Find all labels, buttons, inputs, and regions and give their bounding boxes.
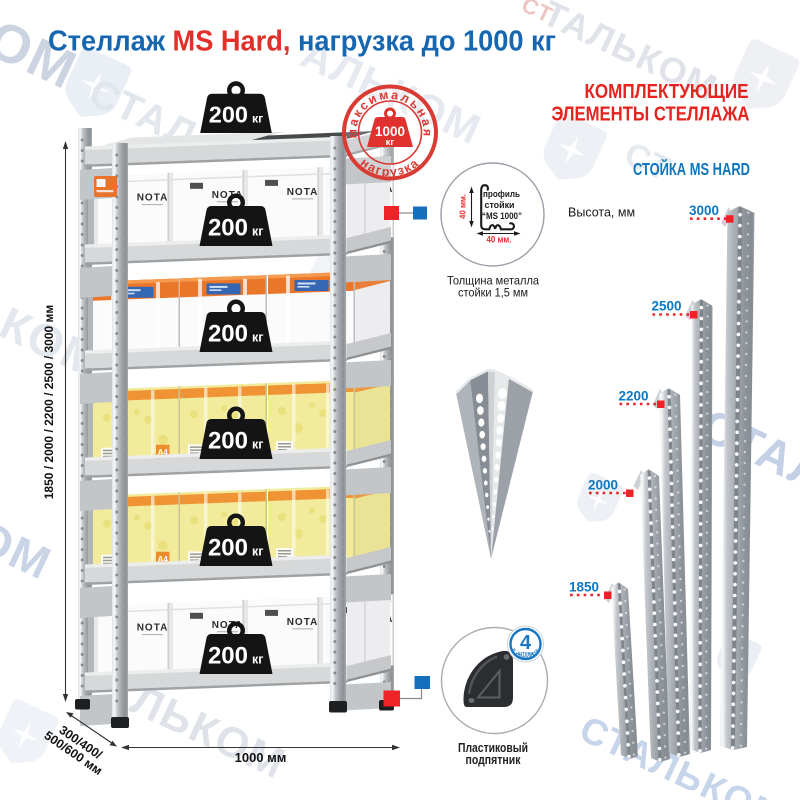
- svg-text:“MS 1000”: “MS 1000”: [482, 211, 522, 222]
- svg-text:стойки: стойки: [485, 200, 515, 211]
- svg-text:подпятник: подпятник: [466, 752, 521, 767]
- svg-text:профиль: профиль: [483, 189, 520, 200]
- svg-text:200: 200: [209, 102, 248, 128]
- svg-text:кг: кг: [252, 653, 263, 667]
- svg-text:40 мм.: 40 мм.: [458, 194, 468, 219]
- svg-text:40 мм.: 40 мм.: [487, 235, 512, 245]
- svg-text:NOTA: NOTA: [137, 193, 169, 204]
- svg-text:200: 200: [208, 321, 248, 348]
- svg-text:кг: кг: [386, 137, 395, 148]
- svg-text:Высота, мм: Высота, мм: [568, 206, 635, 220]
- svg-text:NOTA: NOTA: [287, 187, 319, 198]
- svg-text:200: 200: [208, 643, 248, 670]
- svg-text:1000 мм: 1000 мм: [235, 750, 287, 765]
- svg-text:кг: кг: [252, 225, 263, 239]
- svg-text:ЭЛЕМЕНТЫ СТЕЛЛАЖА: ЭЛЕМЕНТЫ СТЕЛЛАЖА: [552, 103, 750, 126]
- svg-text:1850: 1850: [569, 580, 599, 595]
- svg-text:КОМПЛЕКТУЮЩИЕ: КОМПЛЕКТУЮЩИЕ: [585, 80, 749, 103]
- svg-text:штуки: штуки: [518, 651, 534, 657]
- svg-text:2000: 2000: [588, 478, 618, 493]
- svg-text:NOTA: NOTA: [287, 617, 319, 628]
- svg-text:2200: 2200: [618, 389, 648, 404]
- svg-text:3000: 3000: [689, 203, 719, 218]
- svg-text:200: 200: [208, 428, 248, 455]
- svg-text:кг: кг: [252, 112, 263, 126]
- svg-text:1850 / 2000 / 2200 / 2500 / 30: 1850 / 2000 / 2200 / 2500 / 3000 мм: [42, 305, 56, 500]
- svg-text:СТОЙКА MS HARD: СТОЙКА MS HARD: [633, 158, 750, 179]
- svg-text:кг: кг: [252, 545, 263, 559]
- svg-text:кг: кг: [252, 438, 263, 452]
- svg-text:200: 200: [208, 535, 248, 562]
- svg-text:Стеллаж MS Hard, нагрузка до 1: Стеллаж MS Hard, нагрузка до 1000 кг: [48, 26, 556, 58]
- svg-text:стойки 1,5 мм: стойки 1,5 мм: [458, 286, 528, 300]
- svg-text:кг: кг: [252, 331, 263, 345]
- svg-text:2500: 2500: [651, 299, 681, 314]
- svg-text:NOTA: NOTA: [137, 623, 169, 634]
- svg-text:200: 200: [208, 215, 248, 242]
